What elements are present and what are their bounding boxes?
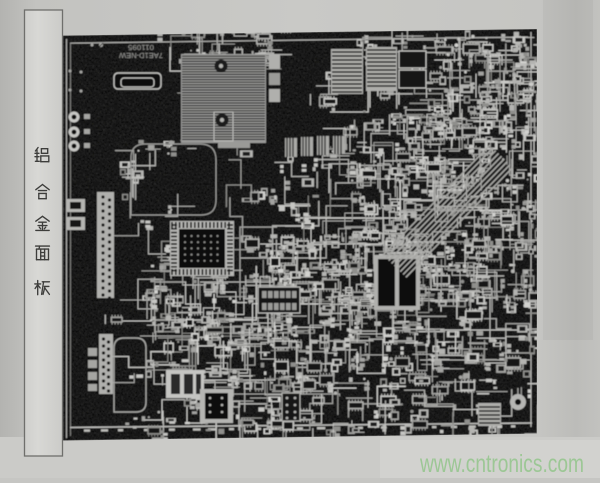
svg-text:011095: 011095 bbox=[128, 43, 154, 50]
svg-text:www.cntronics.com: www.cntronics.com bbox=[419, 450, 584, 478]
svg-text:7AE1D-NEW: 7AE1D-NEW bbox=[119, 51, 163, 58]
